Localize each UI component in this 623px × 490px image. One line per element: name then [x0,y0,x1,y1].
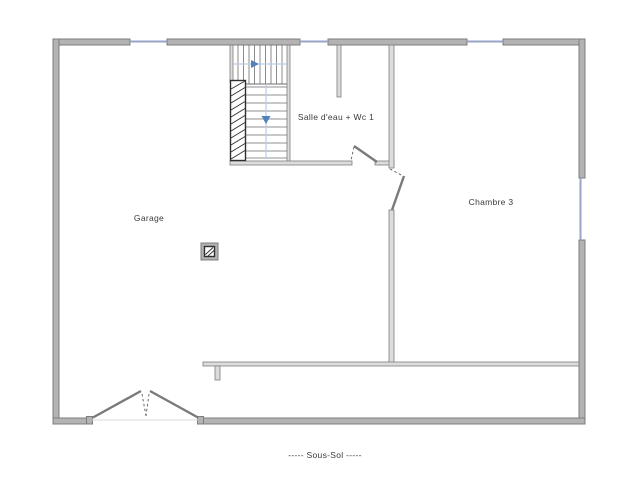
room-label-salle-eau: Salle d'eau + Wc 1 [298,112,374,122]
floor-plan-canvas: Garage Salle d'eau + Wc 1 Chambre 3 ----… [0,0,623,490]
door-salle-eau [351,146,377,162]
room-label-garage: Garage [134,213,164,223]
door-garage [92,391,198,420]
stair-hatched-wall [231,81,246,161]
windows [130,42,581,241]
door-chambre3 [390,169,404,210]
stair-arrow-down-icon [262,116,271,124]
stair-arrow-right-icon [251,60,259,68]
room-label-chambre3: Chambre 3 [469,197,514,207]
room-labels: Garage Salle d'eau + Wc 1 Chambre 3 [134,112,513,223]
floor-plan-page: Garage Salle d'eau + Wc 1 Chambre 3 ----… [0,0,623,490]
doors [92,146,404,420]
staircase [231,45,288,161]
floor-title: ----- Sous-Sol ----- [288,450,362,460]
pillar-post [201,243,218,260]
